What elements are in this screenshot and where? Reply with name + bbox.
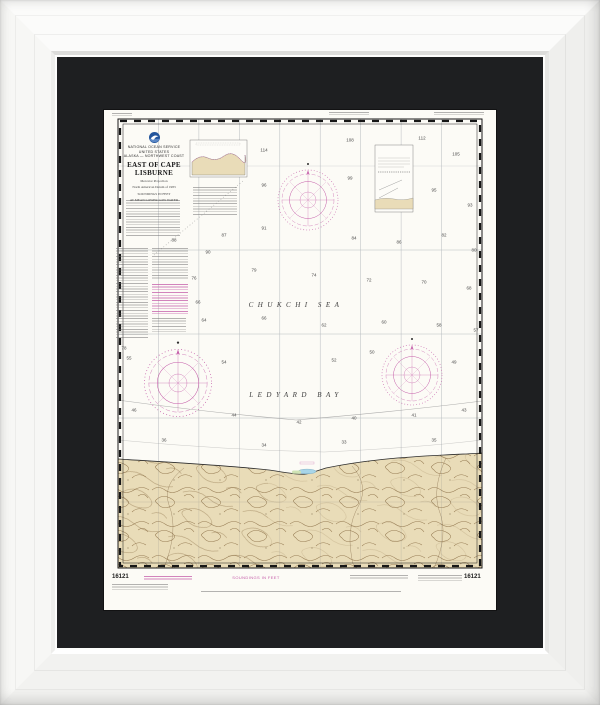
chart-paper: NATIONAL OCEAN SERVICE UNITED STATES ALA… bbox=[104, 110, 496, 610]
depth-sounding: 90 bbox=[205, 250, 210, 255]
datum-note: North American Datum of 1983 bbox=[108, 185, 200, 189]
depth-sounding: 68 bbox=[466, 286, 471, 291]
depth-sounding: 43 bbox=[461, 408, 466, 413]
general-note-block bbox=[126, 200, 180, 236]
depth-sounding: 87 bbox=[221, 233, 226, 238]
depth-sounding: 33 bbox=[341, 440, 346, 445]
caution-note-magenta bbox=[152, 284, 188, 314]
depth-sounding: 74 bbox=[311, 273, 316, 278]
sea-label-chukchi: CHUKCHI SEA bbox=[249, 301, 344, 309]
depth-sounding: 79 bbox=[251, 268, 256, 273]
depth-sounding: 46 bbox=[131, 408, 136, 413]
note-column bbox=[116, 248, 148, 338]
depth-sounding: 84 bbox=[351, 236, 356, 241]
depth-sounding: 49 bbox=[451, 360, 456, 365]
framed-nautical-chart: NATIONAL OCEAN SERVICE UNITED STATES ALA… bbox=[0, 0, 600, 705]
depth-sounding: 52 bbox=[331, 358, 336, 363]
region-line: ALASKA — NORTHWEST COAST bbox=[108, 154, 200, 159]
depth-sounding: 64 bbox=[201, 318, 206, 323]
depth-sounding: 55 bbox=[126, 356, 131, 361]
note-column bbox=[152, 318, 186, 332]
depth-sounding: 88 bbox=[171, 238, 176, 243]
depth-sounding: 60 bbox=[381, 320, 386, 325]
depth-sounding: 112 bbox=[418, 136, 425, 141]
depth-sounding: 95 bbox=[431, 188, 436, 193]
depth-sounding: 41 bbox=[411, 413, 416, 418]
depth-sounding: 36 bbox=[161, 438, 166, 443]
depth-sounding: 58 bbox=[436, 323, 441, 328]
depth-sounding: 66 bbox=[195, 300, 200, 305]
depth-sounding: 40 bbox=[351, 416, 356, 421]
chart-title: EAST OF CAPE LISBURNE bbox=[108, 161, 200, 177]
depth-sounding: 99 bbox=[347, 176, 352, 181]
depth-sounding: 105 bbox=[452, 152, 460, 157]
depth-sounding: 76 bbox=[191, 276, 196, 281]
depth-sounding: 42 bbox=[296, 420, 301, 425]
chart-number-left: 16121 bbox=[112, 574, 129, 580]
depth-sounding: 86 bbox=[396, 240, 401, 245]
depth-sounding: 34 bbox=[261, 443, 266, 448]
note-column bbox=[152, 248, 188, 280]
depth-sounding: 62 bbox=[321, 323, 326, 328]
black-mat: NATIONAL OCEAN SERVICE UNITED STATES ALA… bbox=[57, 57, 543, 648]
depth-sounding: 108 bbox=[346, 138, 354, 143]
soundings-note-2: AT MEAN LOWER LOW WATER bbox=[108, 198, 200, 202]
depth-sounding: 93 bbox=[467, 203, 472, 208]
depth-sounding: 114 bbox=[260, 148, 267, 153]
depth-sounding: 57 bbox=[473, 328, 478, 333]
depth-sounding: 35 bbox=[431, 438, 436, 443]
sea-label-ledyard: LEDYARD BAY bbox=[249, 391, 343, 399]
depth-sounding: 78 bbox=[121, 346, 126, 351]
projection-note: Mercator Projection bbox=[108, 179, 200, 183]
chart-number-right: 16121 bbox=[464, 574, 481, 580]
depth-sounding: 66 bbox=[261, 316, 266, 321]
depth-sounding: 50 bbox=[369, 350, 374, 355]
soundings-in-feet-label: SOUNDINGS IN FEET bbox=[216, 575, 296, 580]
depth-sounding: 82 bbox=[441, 233, 446, 238]
noaa-logo-icon bbox=[149, 132, 160, 143]
depth-sounding: 80 bbox=[471, 248, 476, 253]
soundings-note: SOUNDINGS IN FEET bbox=[108, 192, 200, 196]
depth-sounding: 44 bbox=[231, 413, 236, 418]
depth-sounding: 91 bbox=[261, 226, 266, 231]
depth-sounding: 72 bbox=[366, 278, 371, 283]
title-block: NATIONAL OCEAN SERVICE UNITED STATES ALA… bbox=[108, 132, 200, 202]
depth-sounding: 96 bbox=[261, 183, 266, 188]
depth-sounding: 70 bbox=[421, 280, 426, 285]
depth-sounding: 54 bbox=[221, 360, 226, 365]
